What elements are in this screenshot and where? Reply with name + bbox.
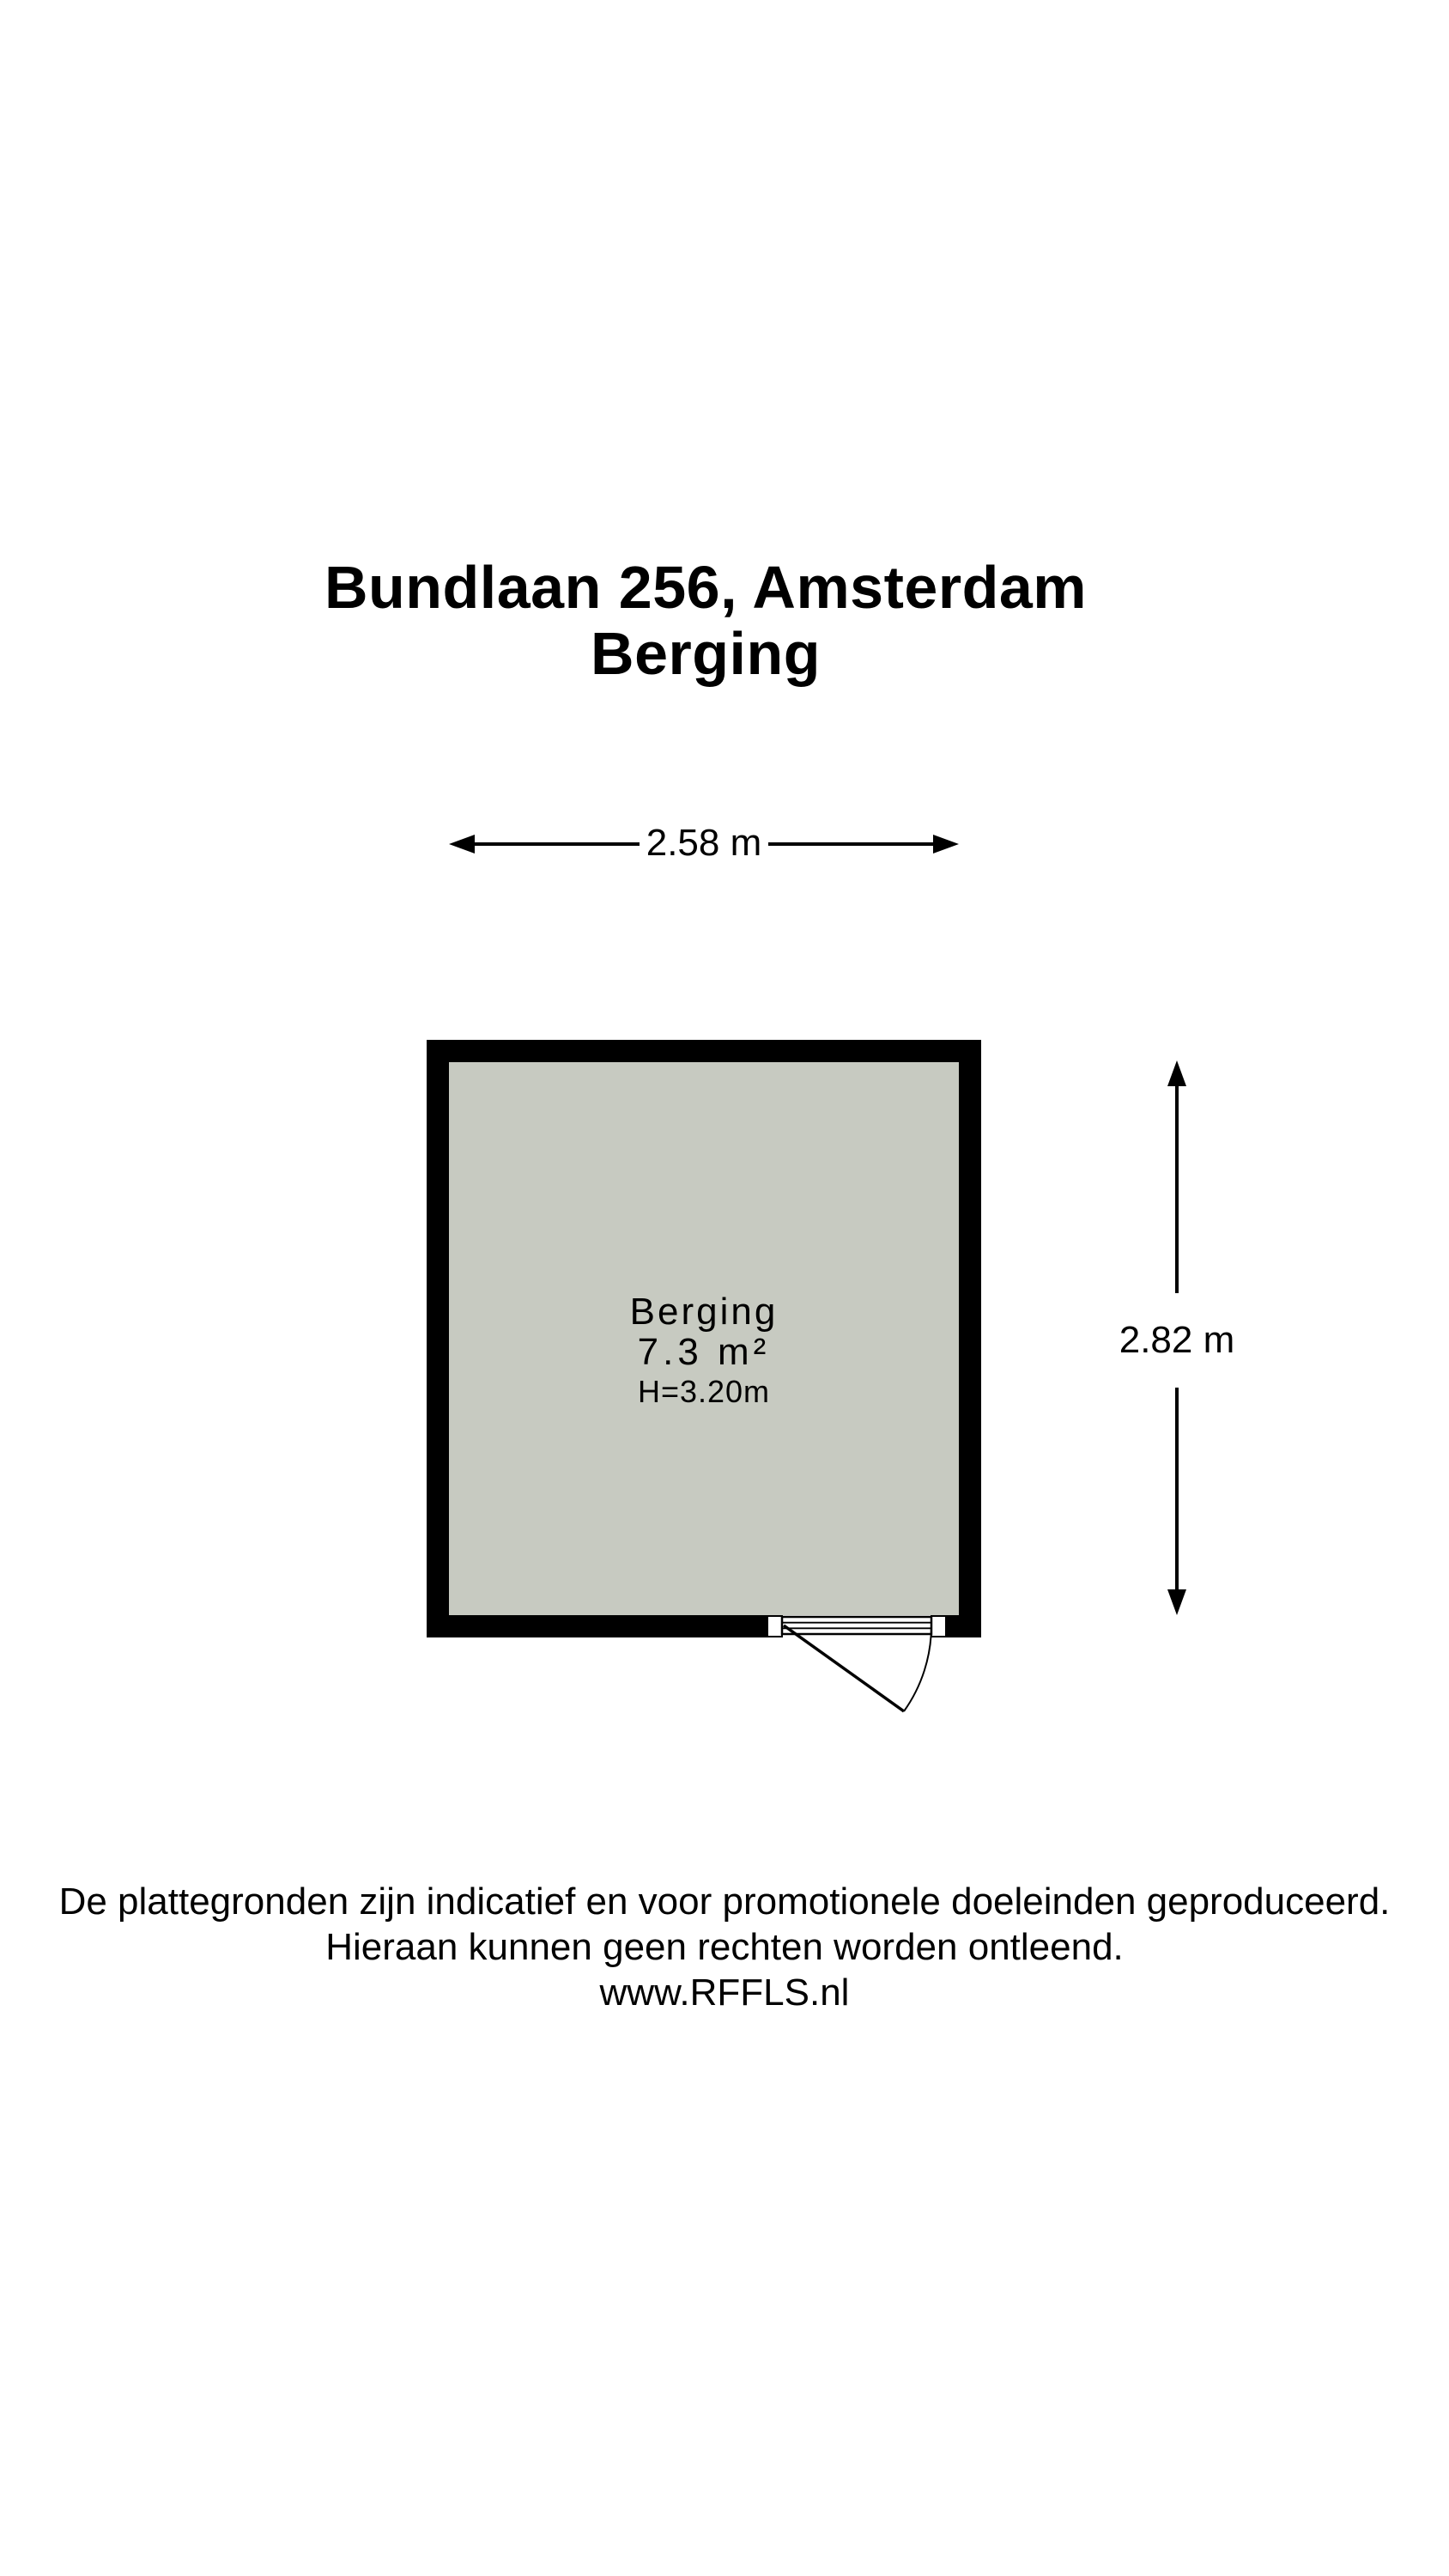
floorplan-page: Bundlaan 256, Amsterdam Berging	[0, 0, 1449, 2576]
door-slab	[782, 1617, 931, 1634]
height-dimension-label: 2.82 m	[1091, 1321, 1263, 1359]
disclaimer-line-1: De plattegronden zijn indicatief en voor…	[0, 1879, 1449, 1924]
website-url: www.RFFLS.nl	[0, 1970, 1449, 2015]
disclaimer: De plattegronden zijn indicatief en voor…	[0, 1879, 1449, 2015]
room-name: Berging	[427, 1291, 981, 1332]
disclaimer-line-2: Hieraan kunnen geen rechten worden ontle…	[0, 1924, 1449, 1970]
width-dimension-label: 2.58 m	[618, 824, 790, 862]
room-area: 7.3 m²	[427, 1332, 981, 1372]
door-jamb-left	[767, 1616, 782, 1637]
room-ceiling-height: H=3.20m	[427, 1372, 981, 1411]
door-swing-arc	[904, 1625, 931, 1711]
door-jamb-right	[931, 1616, 946, 1637]
door-leaf	[784, 1625, 904, 1711]
floorplan-drawing	[0, 0, 1449, 2576]
room-label: Berging 7.3 m² H=3.20m	[427, 1291, 981, 1411]
